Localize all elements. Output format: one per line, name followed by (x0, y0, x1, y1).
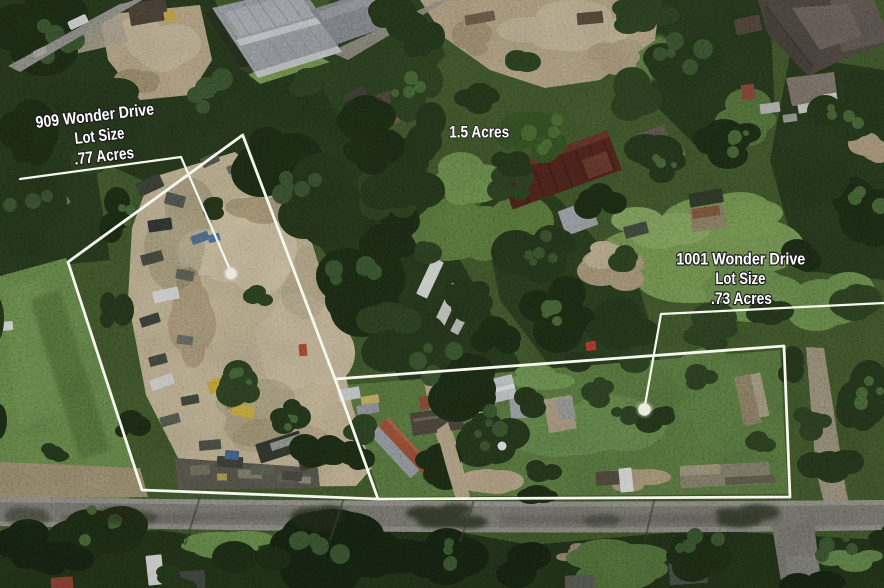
svg-text:Lot Size: Lot Size (715, 270, 765, 288)
svg-text:1.5 Acres: 1.5 Acres (449, 123, 509, 141)
svg-text:Lot Size: Lot Size (74, 124, 126, 148)
svg-text:.73 Acres: .73 Acres (711, 290, 772, 308)
svg-text:1001 Wonder Drive: 1001 Wonder Drive (676, 251, 805, 269)
